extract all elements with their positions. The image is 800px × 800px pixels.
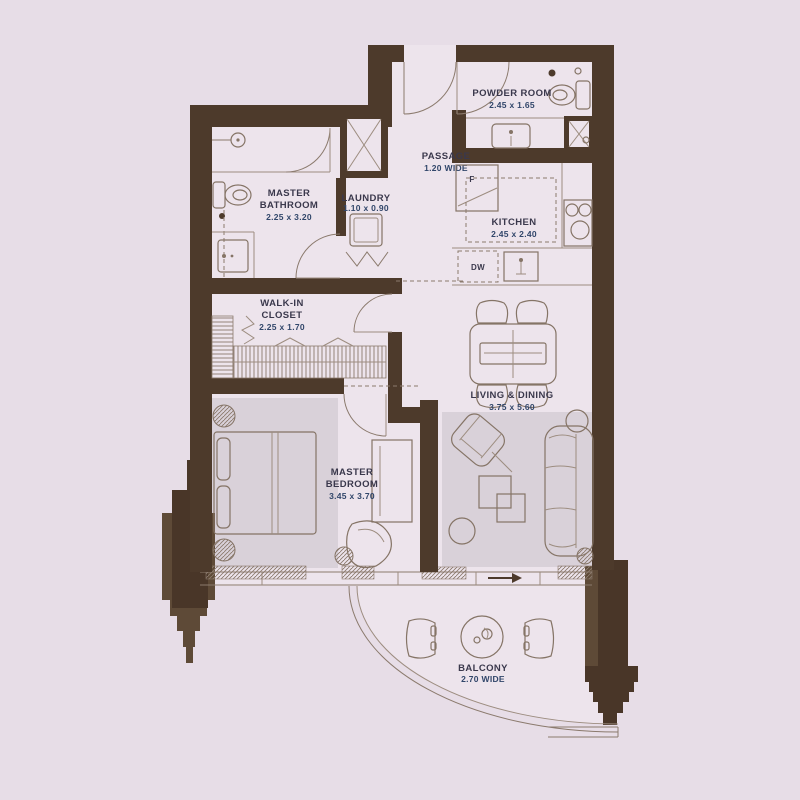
walk-in-closet-label-1: WALK-IN: [260, 298, 303, 309]
living-dining-dims: 3.75 x 5.60: [489, 402, 535, 412]
walk-in-closet-label-2: CLOSET: [262, 310, 303, 321]
master-bedroom-dims: 3.45 x 3.70: [329, 491, 375, 501]
balcony-dims: 2.70 WIDE: [461, 674, 505, 684]
window-sill-hatch: [206, 566, 306, 579]
master-bedroom-label-1: MASTER: [331, 467, 374, 478]
closet-shelving-left: [212, 316, 233, 378]
duct-shaft-main: [340, 112, 388, 178]
walk-in-closet-dims: 2.25 x 1.70: [259, 322, 305, 332]
duct-shaft-powder: [564, 116, 594, 152]
accessory-dot-icon: [549, 70, 556, 77]
window-sill-hatch: [558, 566, 592, 579]
living-dining-label: LIVING & DINING: [470, 390, 553, 401]
master-bedroom-label-2: BEDROOM: [326, 479, 378, 490]
laundry-dims: 1.10 x 0.90: [343, 203, 389, 213]
balcony-floor: [357, 586, 618, 724]
floor-plan-drawing: BALCONY 2.70 WIDE: [0, 0, 800, 800]
powder-room-dims: 2.45 x 1.65: [489, 100, 535, 110]
nightstand-icon: [213, 539, 235, 561]
master-bathroom-dims: 2.25 x 3.20: [266, 212, 312, 222]
floor-plan-canvas: BALCONY 2.70 WIDE: [0, 0, 800, 800]
fridge-label: F: [469, 175, 474, 184]
powder-room-label: POWDER ROOM: [472, 88, 551, 99]
master-bathroom-label-2: BATHROOM: [260, 200, 318, 211]
dishwasher-label: DW: [471, 263, 485, 272]
window-sill-hatch: [342, 566, 374, 579]
master-bathroom-label-1: MASTER: [268, 188, 311, 199]
nightstand-icon: [213, 405, 235, 427]
balcony-label: BALCONY: [458, 663, 508, 674]
kitchen-label: KITCHEN: [491, 217, 536, 228]
bedroom-side-table-icon: [335, 547, 353, 565]
passage-label: PASSAGE: [422, 151, 471, 162]
corner-table-icon: [577, 548, 593, 564]
kitchen-dims: 2.45 x 2.40: [491, 229, 537, 239]
